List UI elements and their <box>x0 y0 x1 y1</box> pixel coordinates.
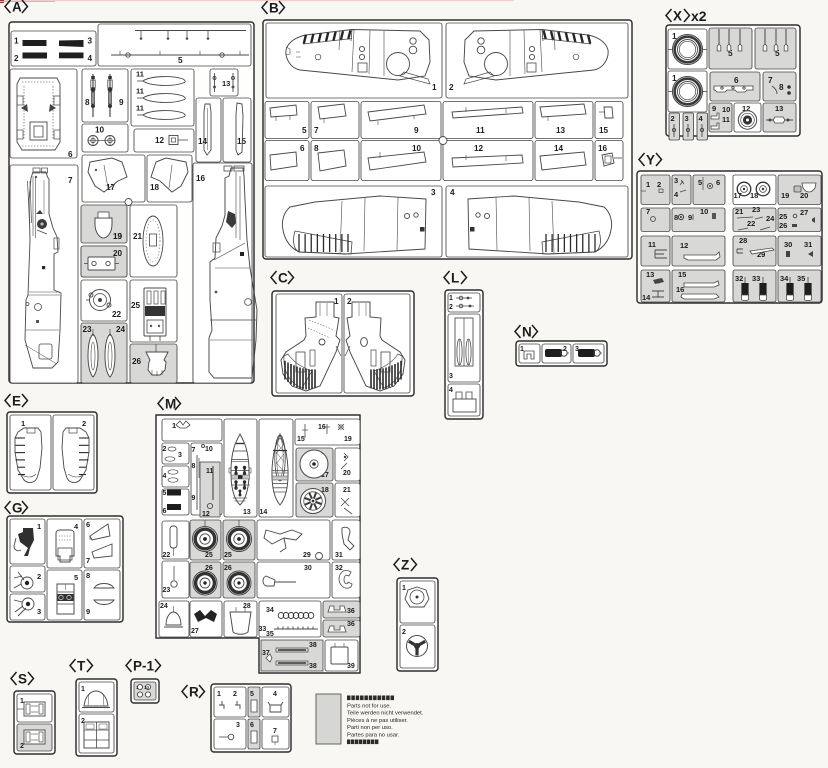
svg-text:12: 12 <box>155 136 165 145</box>
svg-text:Parts not for use.: Parts not for use. <box>347 704 392 710</box>
svg-text:3: 3 <box>685 114 689 123</box>
svg-text:28: 28 <box>739 236 747 245</box>
svg-text:12: 12 <box>680 241 688 250</box>
svg-text:13: 13 <box>243 509 251 516</box>
svg-text:C: C <box>278 271 288 286</box>
svg-text:29: 29 <box>303 552 311 559</box>
svg-text:Y: Y <box>646 153 655 168</box>
svg-text:4: 4 <box>450 188 455 197</box>
svg-text:30: 30 <box>304 565 312 572</box>
svg-text:S: S <box>18 672 27 687</box>
svg-text:5: 5 <box>163 490 167 497</box>
svg-text:4: 4 <box>449 387 453 394</box>
svg-text:7: 7 <box>68 176 73 185</box>
svg-text:3: 3 <box>37 607 41 616</box>
svg-text:2: 2 <box>402 629 406 636</box>
svg-text:13: 13 <box>775 104 783 113</box>
svg-text:1: 1 <box>172 421 176 430</box>
svg-text:30: 30 <box>784 240 792 249</box>
svg-text:1: 1 <box>81 686 85 693</box>
svg-text:Z: Z <box>401 558 409 573</box>
svg-text:B: B <box>269 1 279 16</box>
svg-text:9: 9 <box>414 126 419 135</box>
svg-text:26: 26 <box>779 221 787 230</box>
svg-text:16: 16 <box>318 424 326 431</box>
svg-text:10: 10 <box>144 685 150 690</box>
svg-text:3: 3 <box>236 722 240 729</box>
svg-text:2: 2 <box>37 572 41 581</box>
svg-text:25: 25 <box>131 301 141 310</box>
svg-text:11: 11 <box>648 240 656 249</box>
svg-text:13: 13 <box>556 126 566 135</box>
svg-text:22: 22 <box>747 219 755 228</box>
svg-text:3: 3 <box>178 452 182 459</box>
svg-text:8: 8 <box>314 144 319 153</box>
svg-text:11: 11 <box>722 115 730 124</box>
svg-text:9: 9 <box>688 213 692 222</box>
svg-text:L: L <box>451 271 459 286</box>
svg-text:32: 32 <box>735 274 743 283</box>
svg-text:7: 7 <box>86 556 90 565</box>
svg-text:11: 11 <box>136 104 144 113</box>
svg-text:G: G <box>12 501 23 516</box>
svg-text:x2: x2 <box>691 8 707 24</box>
svg-text:6: 6 <box>68 150 73 159</box>
svg-text:12: 12 <box>474 144 484 153</box>
svg-text:T: T <box>77 659 86 674</box>
svg-text:8: 8 <box>85 98 90 107</box>
svg-text:Pièces à ne pas utiliser.: Pièces à ne pas utiliser. <box>347 718 408 724</box>
svg-text:2: 2 <box>233 691 237 698</box>
svg-text:7: 7 <box>768 76 773 85</box>
svg-text:19: 19 <box>113 232 123 241</box>
svg-text:9: 9 <box>712 104 716 113</box>
svg-text:1: 1 <box>21 419 25 428</box>
svg-text:7: 7 <box>273 728 277 735</box>
svg-text:6: 6 <box>250 722 254 729</box>
svg-text:8: 8 <box>192 463 196 470</box>
svg-text:1: 1 <box>449 295 453 302</box>
svg-text:23: 23 <box>163 587 171 594</box>
svg-text:22: 22 <box>112 310 122 319</box>
svg-text:25: 25 <box>205 552 213 559</box>
svg-text:6: 6 <box>734 76 739 85</box>
svg-text:3: 3 <box>431 188 436 197</box>
svg-text:34: 34 <box>780 274 789 283</box>
svg-text:14: 14 <box>198 137 208 146</box>
svg-text:24: 24 <box>160 603 168 610</box>
svg-text:2: 2 <box>20 743 24 750</box>
svg-text:6: 6 <box>163 508 167 515</box>
svg-text:Parti non per uso.: Parti non per uso. <box>347 725 393 731</box>
svg-text:9: 9 <box>192 495 196 502</box>
svg-text:15: 15 <box>599 126 609 135</box>
svg-text:4: 4 <box>88 54 93 63</box>
svg-text:X: X <box>673 9 682 24</box>
svg-text:1: 1 <box>432 83 437 92</box>
svg-text:10: 10 <box>700 207 708 216</box>
svg-text:1: 1 <box>646 180 650 189</box>
svg-text:1: 1 <box>37 522 41 531</box>
svg-text:23: 23 <box>83 325 93 334</box>
svg-text:7: 7 <box>646 207 650 216</box>
svg-text:22: 22 <box>163 552 171 559</box>
svg-text:19: 19 <box>344 436 352 443</box>
svg-text:2: 2 <box>449 304 453 311</box>
svg-text:8: 8 <box>779 83 784 92</box>
svg-text:25: 25 <box>779 212 787 221</box>
svg-text:2: 2 <box>657 180 661 189</box>
svg-text:6: 6 <box>86 520 90 529</box>
svg-text:15: 15 <box>297 436 305 443</box>
svg-text:6: 6 <box>716 178 720 187</box>
svg-text:E: E <box>12 394 21 409</box>
svg-text:9: 9 <box>86 607 90 616</box>
svg-text:34: 34 <box>266 607 274 614</box>
svg-text:Teile werden nicht verwendet.: Teile werden nicht verwendet. <box>347 711 424 717</box>
svg-text:10: 10 <box>412 144 422 153</box>
svg-text:23: 23 <box>752 205 760 214</box>
svg-text:33: 33 <box>752 274 760 283</box>
svg-text:10: 10 <box>95 126 105 135</box>
svg-text:1: 1 <box>14 37 19 46</box>
svg-text:24: 24 <box>766 214 775 223</box>
svg-text:14: 14 <box>642 293 651 302</box>
svg-text:3: 3 <box>674 176 678 185</box>
svg-text:27: 27 <box>800 208 808 217</box>
svg-text:19: 19 <box>781 191 789 200</box>
svg-text:R: R <box>189 685 199 700</box>
svg-text:13: 13 <box>222 79 230 88</box>
svg-text:18: 18 <box>150 183 160 192</box>
svg-text:9: 9 <box>119 98 124 107</box>
svg-text:Partes para no usar.: Partes para no usar. <box>347 732 400 738</box>
svg-text:20: 20 <box>343 470 351 477</box>
svg-text:7: 7 <box>192 447 196 454</box>
svg-text:A: A <box>12 0 22 15</box>
svg-text:11: 11 <box>476 126 485 135</box>
svg-text:32: 32 <box>335 565 343 572</box>
svg-text:8: 8 <box>86 571 90 580</box>
svg-text:14: 14 <box>554 144 564 153</box>
svg-text:3: 3 <box>449 373 453 380</box>
svg-text:38: 38 <box>309 642 317 649</box>
svg-text:13: 13 <box>646 270 654 279</box>
svg-text:11: 11 <box>136 87 144 96</box>
svg-text:39: 39 <box>347 663 355 670</box>
svg-text:21: 21 <box>133 232 143 241</box>
svg-text:5: 5 <box>74 573 78 582</box>
svg-text:16: 16 <box>676 285 684 294</box>
svg-text:M: M <box>165 397 176 412</box>
svg-text:26: 26 <box>224 565 232 572</box>
svg-text:N: N <box>522 325 532 340</box>
svg-text:1: 1 <box>20 698 24 705</box>
svg-text:3: 3 <box>88 37 93 46</box>
svg-text:36: 36 <box>347 621 355 628</box>
svg-text:2: 2 <box>163 446 167 453</box>
svg-text:16: 16 <box>196 174 206 183</box>
svg-text:2: 2 <box>671 114 675 123</box>
svg-text:4: 4 <box>163 473 167 480</box>
svg-text:2: 2 <box>347 297 352 306</box>
svg-text:5: 5 <box>178 56 183 65</box>
svg-text:21: 21 <box>343 487 351 494</box>
svg-text:16: 16 <box>598 144 608 153</box>
svg-text:7: 7 <box>314 126 319 135</box>
svg-text:5: 5 <box>302 126 307 135</box>
svg-text:28: 28 <box>243 603 251 610</box>
svg-text:11: 11 <box>206 468 214 475</box>
svg-text:P-1: P-1 <box>133 659 155 674</box>
svg-text:4: 4 <box>273 691 277 698</box>
svg-text:36: 36 <box>347 608 355 615</box>
svg-text:35: 35 <box>266 631 274 638</box>
svg-text:31: 31 <box>335 552 343 559</box>
svg-text:14: 14 <box>260 509 268 516</box>
svg-text:26: 26 <box>132 357 142 366</box>
svg-text:1: 1 <box>217 691 221 698</box>
svg-text:2: 2 <box>449 83 454 92</box>
svg-text:2: 2 <box>14 54 19 63</box>
svg-text:38: 38 <box>309 663 317 670</box>
svg-text:5: 5 <box>250 691 254 698</box>
svg-text:8: 8 <box>674 213 678 222</box>
svg-text:27: 27 <box>191 628 199 635</box>
svg-text:24: 24 <box>116 325 126 334</box>
svg-text:20: 20 <box>800 191 808 200</box>
svg-text:12: 12 <box>202 511 210 518</box>
svg-text:11: 11 <box>136 70 144 79</box>
svg-text:10: 10 <box>722 105 730 114</box>
svg-text:5: 5 <box>698 178 702 187</box>
svg-text:2: 2 <box>82 419 86 428</box>
svg-text:25: 25 <box>224 552 232 559</box>
svg-text:1: 1 <box>520 346 524 353</box>
svg-text:10: 10 <box>205 446 213 453</box>
svg-text:21: 21 <box>735 207 743 216</box>
svg-text:31: 31 <box>804 240 812 249</box>
svg-text:35: 35 <box>797 274 805 283</box>
svg-text:1: 1 <box>334 297 339 306</box>
svg-text:1: 1 <box>402 585 406 592</box>
svg-text:6: 6 <box>300 144 305 153</box>
svg-text:15: 15 <box>678 270 686 279</box>
